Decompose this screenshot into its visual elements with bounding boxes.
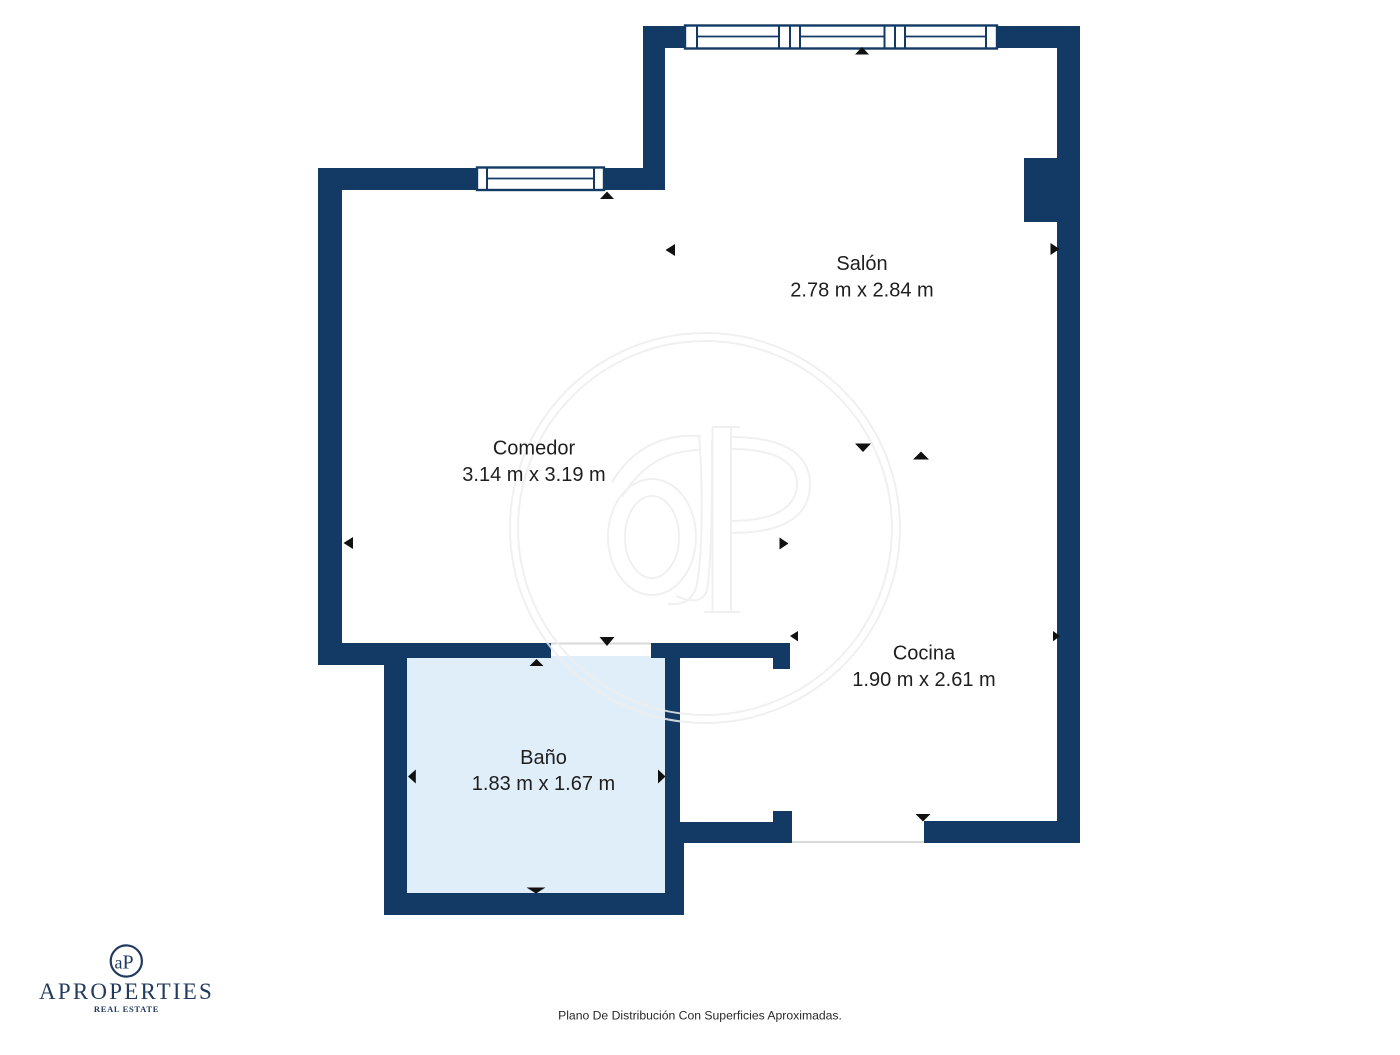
svg-text:1.83 m x 1.67 m: 1.83 m x 1.67 m xyxy=(472,773,615,795)
svg-text:Plano De Distribución Con Supe: Plano De Distribución Con Superficies Ap… xyxy=(558,1009,842,1023)
svg-text:Baño: Baño xyxy=(520,747,567,769)
svg-text:a: a xyxy=(115,953,123,973)
svg-text:Cocina: Cocina xyxy=(893,643,956,665)
svg-text:Comedor: Comedor xyxy=(493,438,576,460)
svg-text:APROPERTIES: APROPERTIES xyxy=(39,979,214,1004)
svg-text:3.14 m x 3.19 m: 3.14 m x 3.19 m xyxy=(462,464,605,486)
svg-text:P: P xyxy=(123,952,134,974)
svg-text:REAL ESTATE: REAL ESTATE xyxy=(94,1004,159,1014)
svg-text:Salón: Salón xyxy=(836,253,887,275)
svg-text:1.90 m x 2.61 m: 1.90 m x 2.61 m xyxy=(852,669,995,691)
svg-text:2.78 m x 2.84 m: 2.78 m x 2.84 m xyxy=(790,280,933,302)
